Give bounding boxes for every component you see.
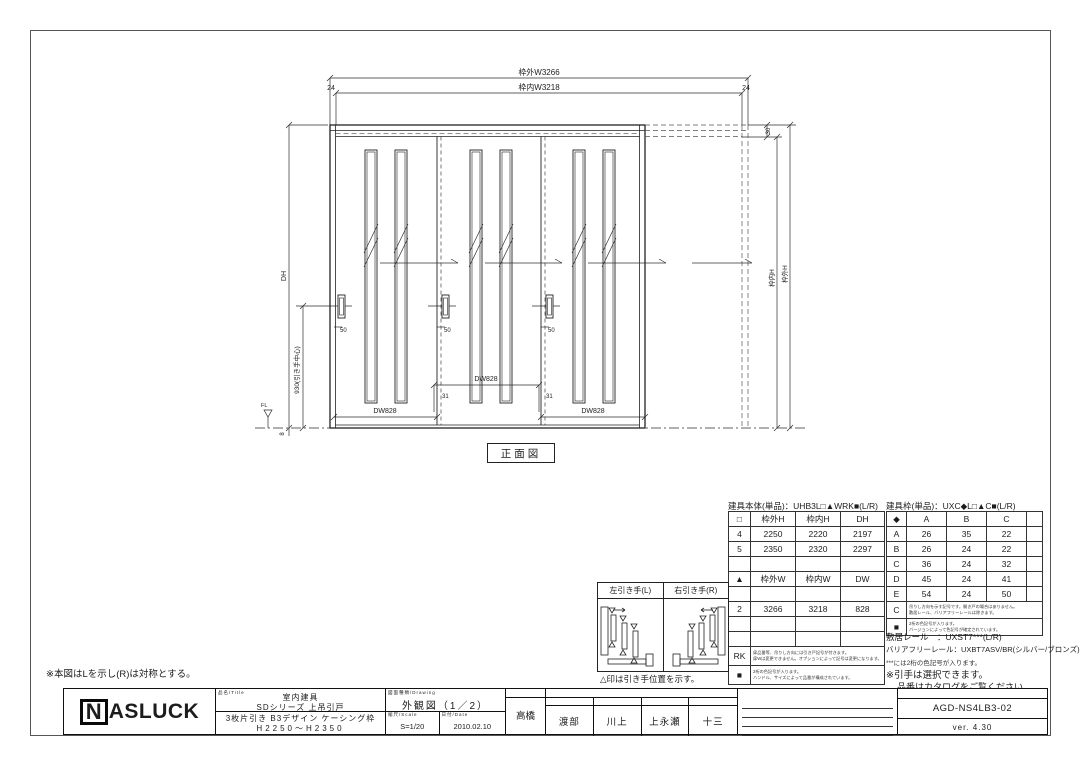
note-row: ■ 2桁の色記号が入ります。 ハンドル、サイズによって品番が構成されています。 (729, 666, 885, 685)
cell (796, 617, 841, 632)
barrier-free-rail-note: バリアフリーレール：UXBT7ASV/BR(シルバー/ブロンズ) (886, 644, 1080, 655)
cell (841, 617, 885, 632)
cell: 26 (907, 527, 947, 542)
table-row: □枠外H枠内HDH (729, 512, 885, 527)
cell: DH (841, 512, 885, 527)
note-row: C 吊りし方向を示す記号です。開き戸の場合はありません。 敷居レール、バリアフリ… (887, 602, 1043, 619)
table-row (729, 632, 885, 647)
checker-name: 川上 (594, 714, 641, 728)
table-row: C362432 (887, 557, 1043, 572)
cell: 枠外W (751, 572, 796, 587)
cell: 41 (987, 572, 1027, 587)
cell (841, 587, 885, 602)
view-label: 正面図 (487, 443, 555, 463)
cell: 5 (729, 542, 751, 557)
dim-inner-height: 枠内H (767, 269, 776, 287)
cell (1027, 587, 1043, 602)
cell: 22 (987, 527, 1027, 542)
approver-name: 高橋 (506, 708, 545, 722)
product-spec: 3枚片引き B3デザイン ケーシング枠 (226, 714, 376, 724)
cell (729, 632, 751, 647)
body-spec-table: □枠外H枠内HDH 4225022202197 5235023202297 ▲枠… (728, 511, 885, 685)
cell (729, 587, 751, 602)
cell: □ (729, 512, 751, 527)
cell: E (887, 587, 907, 602)
handle-table-caption: △印は引き手位置を示す。 (600, 673, 699, 685)
logo-text: ASLUCK (109, 700, 200, 724)
cell: DW (841, 572, 885, 587)
cell: 枠内W (796, 572, 841, 587)
product-height-range: H2250〜H2350 (256, 724, 344, 734)
cell: 2220 (796, 527, 841, 542)
handle-select-note: ※引手は選択できます。 (886, 667, 988, 681)
elevation-drawing: 枠外W3266 枠内W3218 24 24 DH 930(引き手中心) FL 8… (230, 60, 810, 480)
checker-col: 検図3 渡部 (546, 698, 594, 736)
logo-cell: N ASLUCK (64, 689, 216, 734)
cell: C (887, 557, 907, 572)
cell: 2 (729, 602, 751, 617)
logo-n-mark: N (80, 699, 108, 725)
cell: B (887, 542, 907, 557)
handle-position-table: 左引き手(L) 右引き手(R) (597, 582, 729, 672)
handle-diagram-right-cell (664, 599, 729, 671)
date-label: 日付/Date (440, 712, 505, 718)
cell: 24 (947, 542, 987, 557)
handle-left-header: 左引き手(L) (598, 583, 664, 598)
checker-col: 作図 十三 (689, 698, 737, 736)
note-text: 2桁の色記号が入ります。 ハンドル、サイズによって品番が構成されています。 (751, 666, 885, 685)
cell: 22 (987, 542, 1027, 557)
table-row: A263522 (887, 527, 1043, 542)
note-line: 扉Wは変更できません。オプションによって記号は変更になります。 (751, 656, 884, 662)
date-value: 2010.02.10 (440, 722, 505, 731)
cell: B (947, 512, 987, 527)
approval-cell: 承認 高橋 (506, 689, 546, 734)
note-line: ハンドル、サイズによって品番が構成されています。 (751, 675, 884, 681)
table-row (729, 557, 885, 572)
cell (796, 587, 841, 602)
cell: 3218 (796, 602, 841, 617)
cell: ▲ (729, 572, 751, 587)
cell: ◆ (887, 512, 907, 527)
cell: A (887, 527, 907, 542)
dim-dw3: DW828 (581, 408, 604, 415)
dim-offset1: 50 (340, 328, 347, 334)
handle-right-header: 右引き手(R) (664, 583, 729, 598)
cell (729, 617, 751, 632)
cell: 828 (841, 602, 885, 617)
cell: A (907, 512, 947, 527)
product-category: 室内建具 (283, 693, 319, 703)
glass-hatch (364, 224, 616, 267)
drawing-label: 図面種類/Drawing (388, 690, 436, 696)
dim-handle-center: 930(引き手中心) (292, 346, 301, 394)
handle-diagram-left-cell (598, 599, 664, 671)
drawing-type-cell: 図面種類/Drawing 外観図（1／2） 縮尺/Scale S=1/20 日付… (386, 689, 506, 734)
cell (751, 632, 796, 647)
cell: 4 (729, 527, 751, 542)
dim-offset3: 50 (548, 328, 555, 334)
drawing-version: ver. 4.30 (898, 719, 1047, 736)
checker-name: 十三 (689, 714, 737, 728)
cell (729, 557, 751, 572)
title-block: N ASLUCK 品名/Title 室内建具 SDシリーズ 上吊引戸 3枚片引き… (63, 688, 1048, 735)
cell: 24 (947, 557, 987, 572)
cell (751, 587, 796, 602)
scale-value: S=1/20 (386, 722, 439, 731)
cell (1027, 542, 1043, 557)
mirror-note: ※本図はLを示し(R)は対称とする。 (46, 666, 196, 680)
floor-level-mark (264, 410, 272, 428)
cell (1027, 572, 1043, 587)
cell (1027, 512, 1043, 527)
checker-col: 検図2 川上 (594, 698, 642, 736)
dim-dw1: DW828 (373, 408, 396, 415)
cell (751, 617, 796, 632)
pocket-dashed-outline (645, 125, 748, 428)
cell (796, 632, 841, 647)
dim-fl: FL (261, 403, 267, 409)
dim-floor-gap: 8 (280, 432, 286, 436)
cell: 3266 (751, 602, 796, 617)
cell: 24 (947, 587, 987, 602)
table-row: 5235023202297 (729, 542, 885, 557)
cell (1027, 527, 1043, 542)
door-handles (338, 295, 553, 318)
cell (841, 557, 885, 572)
checkers-cell: 検査者/Check up by ナスラック㈱ダンシステム工業 検図3 渡部 検図… (546, 689, 738, 734)
drawing-sheet: 枠外W3266 枠内W3218 24 24 DH 930(引き手中心) FL 8… (0, 0, 1080, 764)
dim-dw2: DW828 (474, 376, 497, 383)
cell (1027, 557, 1043, 572)
table-row (729, 587, 885, 602)
dim-inner-width: 枠内W3218 (518, 82, 560, 92)
product-name-cell: 品名/Title 室内建具 SDシリーズ 上吊引戸 3枚片引き B3デザイン ケ… (216, 689, 386, 734)
cell: 54 (907, 587, 947, 602)
handle-diagram-right (664, 599, 728, 671)
scale-label: 縮尺/Scale (386, 712, 439, 718)
table-row: E542450 (887, 587, 1043, 602)
name-label: 品名/Title (218, 690, 245, 696)
cell: 2320 (796, 542, 841, 557)
dim-offset2: 50 (444, 328, 451, 334)
cell (796, 557, 841, 572)
table-row: ◆ABC (887, 512, 1043, 527)
cell: 36 (907, 557, 947, 572)
note-text: 吊りし方向を示す記号です。開き戸の場合はありません。 敷居レール、バリアフリーレ… (907, 602, 1043, 619)
cell: 2297 (841, 542, 885, 557)
cell: 26 (907, 542, 947, 557)
drawing-number-cell: 図面番号/No. AGD-NS4LB3-02 ver. 4.30 (898, 689, 1047, 734)
note-line: 敷居レール、バリアフリーレールは除きます。 (907, 610, 1042, 616)
note-key: ■ (729, 666, 751, 685)
table-row: 4225022202197 (729, 527, 885, 542)
cell: 24 (947, 572, 987, 587)
dim-overlap2: 31 (546, 394, 553, 400)
table-row: B262422 (887, 542, 1043, 557)
cell: 35 (947, 527, 987, 542)
dim-margin-left: 24 (327, 85, 335, 92)
history-cell: 履歴/History (738, 689, 898, 734)
handle-table-header: 左引き手(L) 右引き手(R) (598, 583, 728, 599)
note-text: 扉品番等、吊りし方向には引き戸記号が付きます。 扉Wは変更できません。オプション… (751, 647, 885, 666)
note-key: C (887, 602, 907, 619)
sill-rail-note: 敷居レール ：UXST7***(L/R) (886, 631, 1002, 643)
cell: 32 (987, 557, 1027, 572)
checker-col: 検図1 上永瀬 (642, 698, 690, 736)
cell: 45 (907, 572, 947, 587)
checker-name: 渡部 (546, 714, 593, 728)
note-row: RK 扉品番等、吊りし方向には引き戸記号が付きます。 扉Wは変更できません。オプ… (729, 647, 885, 666)
drawing-type: 外観図（1／2） (402, 697, 489, 712)
table-row: 232663218828 (729, 602, 885, 617)
dim-outer-width: 枠外W3266 (518, 67, 560, 77)
cell: D (887, 572, 907, 587)
cell: C (987, 512, 1027, 527)
table-row (729, 617, 885, 632)
cell: 枠外H (751, 512, 796, 527)
cell: 2197 (841, 527, 885, 542)
handle-diagram-left (598, 599, 662, 671)
drawing-number: AGD-NS4LB3-02 (898, 698, 1047, 719)
dim-margin-right: 24 (742, 85, 750, 92)
glass-leader-arrows (380, 259, 752, 263)
table-row: ▲枠外W枠内WDW (729, 572, 885, 587)
dim-outer-height: 枠外H (780, 265, 789, 283)
cell: 2350 (751, 542, 796, 557)
cell: 枠内H (796, 512, 841, 527)
cell: 50 (987, 587, 1027, 602)
cell (841, 632, 885, 647)
note-key: RK (729, 647, 751, 666)
color-code-note: ***には2桁の色記号が入ります。 (886, 657, 981, 667)
frame-spec-table: ◆ABC A263522 B262422 C362432 D452441 E54… (886, 511, 1043, 636)
view-label-text: 正面図 (501, 446, 542, 461)
table-row: D452441 (887, 572, 1043, 587)
history-lines (738, 698, 897, 738)
cell (751, 557, 796, 572)
dim-overlap1: 31 (442, 394, 449, 400)
nasluck-logo: N ASLUCK (64, 689, 215, 734)
dim-top-rail: 30 (766, 127, 772, 134)
checker-name: 上永瀬 (642, 714, 689, 728)
cell: 2250 (751, 527, 796, 542)
dim-dh: DH (281, 271, 288, 281)
